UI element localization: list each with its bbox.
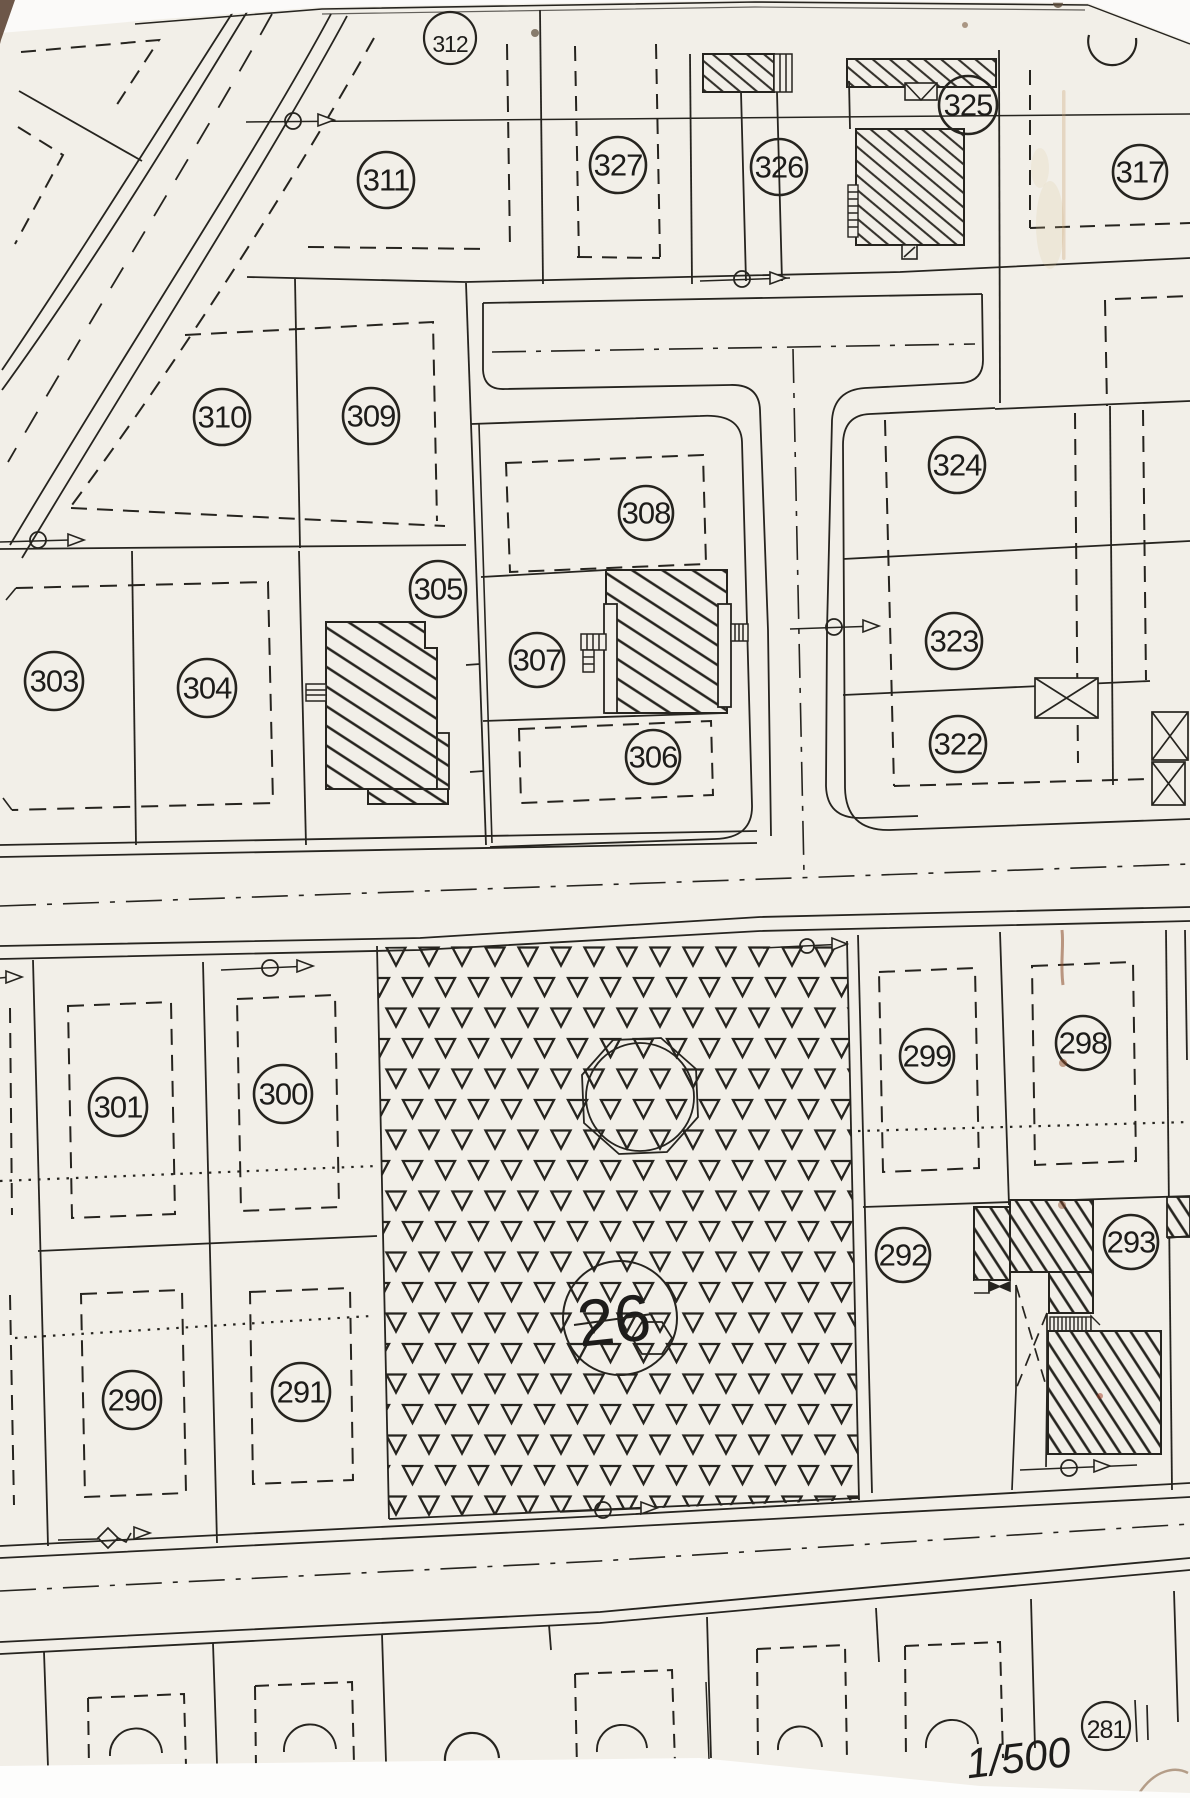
- svg-text:306: 306: [629, 740, 678, 775]
- svg-text:310: 310: [198, 400, 247, 435]
- svg-text:326: 326: [755, 150, 804, 185]
- svg-text:298: 298: [1059, 1026, 1108, 1061]
- svg-text:303: 303: [30, 664, 79, 699]
- svg-text:304: 304: [183, 671, 232, 706]
- svg-text:281: 281: [1087, 1716, 1126, 1744]
- svg-text:325: 325: [944, 88, 993, 123]
- svg-text:307: 307: [513, 643, 562, 678]
- svg-text:292: 292: [879, 1238, 928, 1273]
- svg-text:308: 308: [622, 496, 671, 531]
- svg-text:299: 299: [903, 1039, 952, 1074]
- svg-text:305: 305: [414, 572, 463, 607]
- svg-text:300: 300: [259, 1077, 308, 1112]
- svg-text:291: 291: [277, 1375, 326, 1410]
- svg-text:311: 311: [363, 163, 409, 198]
- svg-text:317: 317: [1116, 155, 1165, 190]
- svg-text:324: 324: [933, 448, 982, 483]
- svg-text:290: 290: [108, 1383, 157, 1418]
- svg-text:309: 309: [347, 399, 396, 434]
- svg-text:301: 301: [94, 1090, 143, 1125]
- svg-text:312: 312: [432, 31, 468, 57]
- svg-text:322: 322: [934, 727, 983, 762]
- svg-text:323: 323: [930, 624, 979, 659]
- svg-text:327: 327: [594, 148, 643, 183]
- svg-text:293: 293: [1107, 1225, 1156, 1260]
